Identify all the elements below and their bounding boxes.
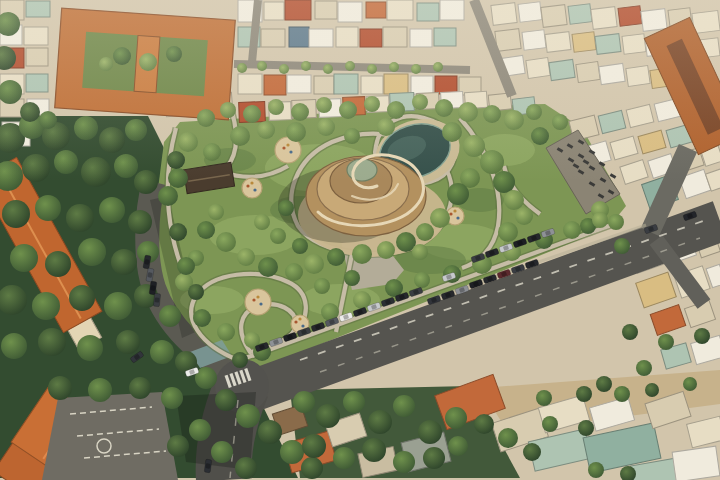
aerial-city-park-render — [0, 0, 720, 480]
haze-overlay — [0, 0, 720, 480]
aerial-park-render-stage — [0, 0, 720, 480]
